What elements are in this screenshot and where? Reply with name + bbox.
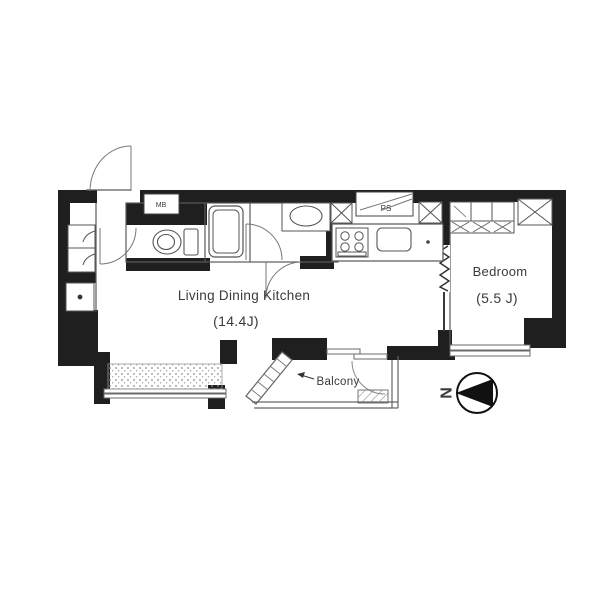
bathroom xyxy=(209,206,282,260)
toilet-tank xyxy=(184,229,198,255)
ldk-window-inner xyxy=(104,394,226,398)
wall-right xyxy=(552,200,566,323)
pipe-space-label: PS xyxy=(381,204,392,213)
stove-burner-1 xyxy=(341,232,349,240)
kitchen-sink-icon xyxy=(377,228,411,251)
stove-burner-4 xyxy=(355,243,363,251)
balcony-sliding-panel-1 xyxy=(327,349,360,354)
bath-door-swing xyxy=(246,224,282,260)
stove-grill xyxy=(338,252,366,256)
balcony-label: Balcony xyxy=(316,376,359,388)
floor-plan-drawing: MB PS xyxy=(0,0,616,606)
wall-window-stub-upper xyxy=(220,340,237,364)
hall-cabinet xyxy=(66,225,95,311)
bedroom-window-inner xyxy=(450,351,530,356)
drain-pan xyxy=(358,390,388,403)
hall-cabinet-upper xyxy=(68,225,95,248)
bedroom-window-outer xyxy=(450,345,530,350)
toilet-bowl-inner xyxy=(158,235,175,250)
planter-strip xyxy=(108,364,222,389)
washbasin-icon xyxy=(290,206,322,226)
stove-burner-2 xyxy=(355,232,363,240)
meter-box-label: MB xyxy=(156,202,167,209)
wall-corner-bedroom-br xyxy=(524,318,566,348)
water-heater-dot xyxy=(78,295,83,300)
hall-cabinet-lower xyxy=(68,248,95,272)
wall-mass-bottom-left xyxy=(58,310,98,366)
bedroom-size-label: (5.5 J) xyxy=(476,290,518,306)
ldk-window-outer xyxy=(104,389,226,393)
balcony-sliding-panel-2 xyxy=(354,354,387,359)
balcony-label-arrow xyxy=(297,372,314,379)
stove-burner-3 xyxy=(341,243,349,251)
compass-north-label: N xyxy=(439,387,456,399)
bathtub-inner xyxy=(213,210,239,253)
ldk-label: Living Dining Kitchen xyxy=(178,288,310,303)
entrance-door-swing xyxy=(90,146,131,191)
compass-icon: N xyxy=(439,373,498,413)
faucet-dot xyxy=(426,240,430,244)
ldk-size-label: (14.4J) xyxy=(213,313,259,329)
bedroom-label: Bedroom xyxy=(473,264,528,279)
kitchen xyxy=(332,224,443,261)
toilet xyxy=(153,229,198,255)
washroom xyxy=(266,203,330,298)
closet xyxy=(450,202,514,233)
wall-bottom-center-right xyxy=(387,346,455,360)
floor-plan-canvas: MB PS xyxy=(0,0,616,606)
wall-sanitary-bottom-left xyxy=(126,258,210,271)
